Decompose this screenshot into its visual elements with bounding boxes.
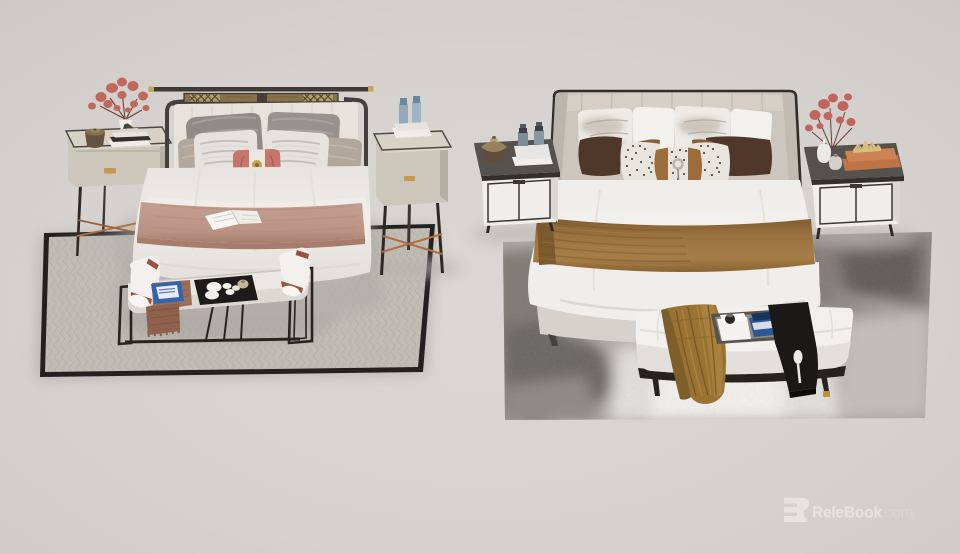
svg-text:ReleBook: ReleBook — [812, 505, 882, 522]
svg-text:.com: .com — [880, 505, 914, 522]
